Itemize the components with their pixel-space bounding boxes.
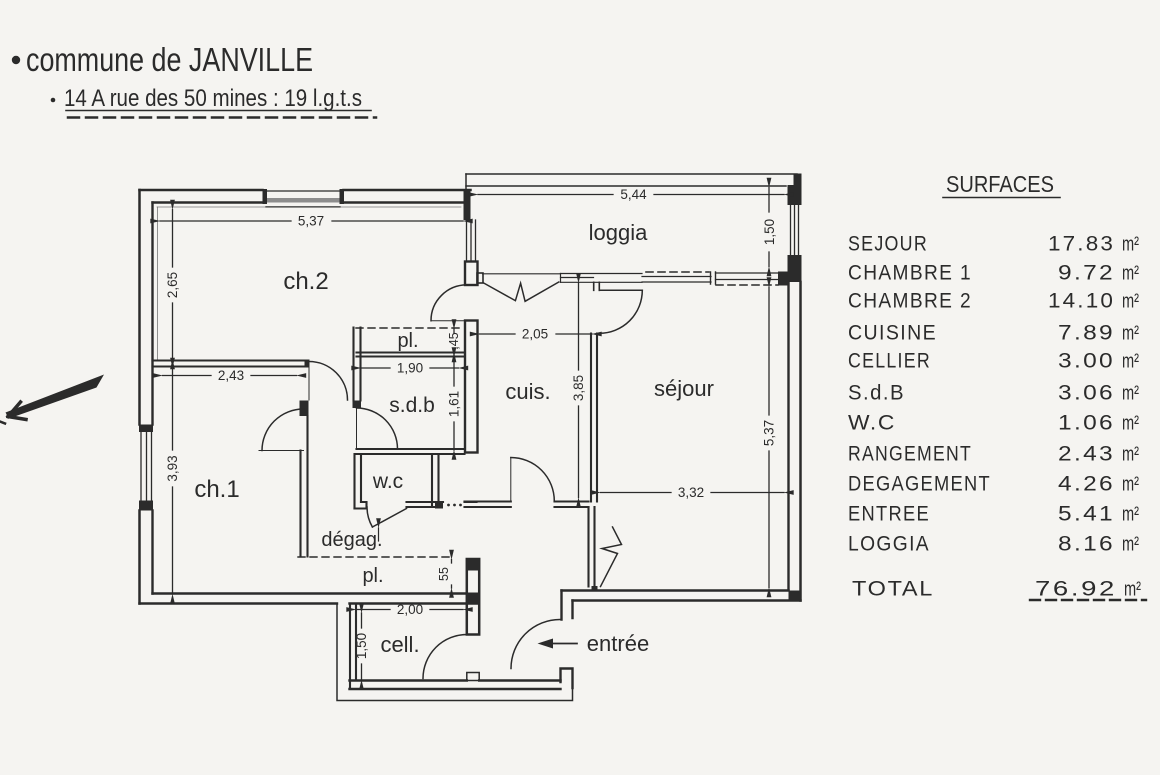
- svg-text:m²: m²: [1122, 351, 1139, 373]
- svg-text:m²: m²: [1122, 413, 1139, 435]
- svg-text:9.72: 9.72: [1058, 262, 1115, 285]
- svg-text:3,32: 3,32: [678, 485, 704, 500]
- svg-text:m²: m²: [1122, 504, 1139, 526]
- svg-text:cuis.: cuis.: [505, 379, 550, 404]
- svg-text:ENTREE: ENTREE: [848, 503, 930, 526]
- svg-text:CHAMBRE 2: CHAMBRE 2: [848, 290, 972, 313]
- svg-text:5,37: 5,37: [762, 420, 777, 446]
- svg-text:SEJOUR: SEJOUR: [848, 233, 928, 256]
- svg-text:4.26: 4.26: [1058, 473, 1115, 496]
- svg-text:m²: m²: [1122, 234, 1139, 256]
- svg-text:1,90: 1,90: [397, 361, 423, 376]
- svg-text:m²: m²: [1122, 474, 1139, 496]
- svg-text:2,00: 2,00: [397, 602, 423, 617]
- svg-text:14 A rue des 50 mines : 19 l.g: 14 A rue des 50 mines : 19 l.g.t.s: [64, 85, 362, 112]
- svg-text:m²: m²: [1122, 444, 1139, 466]
- svg-text:commune de JANVILLE: commune de JANVILLE: [26, 41, 313, 78]
- svg-text:2,65: 2,65: [165, 272, 180, 298]
- svg-text:loggia: loggia: [589, 220, 648, 245]
- svg-text:m²: m²: [1122, 263, 1139, 285]
- svg-text:1,61: 1,61: [447, 391, 462, 417]
- svg-text:5,37: 5,37: [298, 214, 324, 229]
- svg-text:LOGGIA: LOGGIA: [848, 533, 930, 556]
- svg-text:2,05: 2,05: [522, 327, 548, 342]
- svg-text:55: 55: [437, 567, 451, 581]
- svg-text:pl.: pl.: [397, 330, 418, 352]
- svg-text:s.d.b: s.d.b: [389, 394, 435, 417]
- svg-text:1,50: 1,50: [354, 633, 369, 659]
- svg-text:S.d.B: S.d.B: [848, 382, 905, 405]
- svg-text:SURFACES: SURFACES: [946, 171, 1054, 197]
- svg-text:14.10: 14.10: [1048, 290, 1115, 313]
- svg-text:8.16: 8.16: [1058, 533, 1115, 556]
- svg-text:ch.1: ch.1: [194, 476, 239, 503]
- svg-text:RANGEMENT: RANGEMENT: [848, 443, 972, 466]
- svg-text:m²: m²: [1122, 323, 1139, 345]
- svg-text:DEGAGEMENT: DEGAGEMENT: [848, 473, 991, 496]
- svg-text:pl.: pl.: [362, 565, 383, 587]
- svg-text:7.89: 7.89: [1058, 322, 1115, 345]
- svg-text:2,43: 2,43: [218, 368, 244, 383]
- svg-text:2.43: 2.43: [1058, 443, 1115, 466]
- svg-text:17.83: 17.83: [1048, 233, 1115, 256]
- svg-text:76.92: 76.92: [1035, 578, 1117, 601]
- svg-text:m²: m²: [1122, 534, 1139, 556]
- svg-text:CHAMBRE 1: CHAMBRE 1: [848, 262, 972, 285]
- svg-text:,45: ,45: [447, 332, 461, 349]
- svg-text:1.06: 1.06: [1058, 412, 1115, 435]
- svg-text:3,85: 3,85: [571, 375, 586, 401]
- svg-text:TOTAL: TOTAL: [852, 578, 934, 601]
- svg-text:ch.2: ch.2: [283, 268, 328, 295]
- svg-text:3.00: 3.00: [1058, 350, 1115, 373]
- svg-text:1,50: 1,50: [762, 219, 777, 245]
- svg-text:3.06: 3.06: [1058, 382, 1115, 405]
- svg-text:entrée: entrée: [587, 631, 649, 656]
- svg-text:w.c: w.c: [372, 470, 403, 493]
- svg-text:séjour: séjour: [654, 376, 714, 401]
- svg-text:5,44: 5,44: [620, 187, 647, 202]
- svg-text:CELLIER: CELLIER: [848, 350, 931, 373]
- svg-text:5.41: 5.41: [1058, 503, 1115, 526]
- svg-text:3,93: 3,93: [165, 455, 180, 481]
- svg-text:m²: m²: [1124, 579, 1141, 601]
- svg-text:m²: m²: [1122, 291, 1139, 313]
- svg-text:CUISINE: CUISINE: [848, 322, 937, 345]
- svg-text:dégag.: dégag.: [321, 529, 382, 551]
- svg-text:W.C: W.C: [848, 412, 896, 435]
- svg-text:m²: m²: [1122, 383, 1139, 405]
- svg-text:cell.: cell.: [380, 632, 419, 657]
